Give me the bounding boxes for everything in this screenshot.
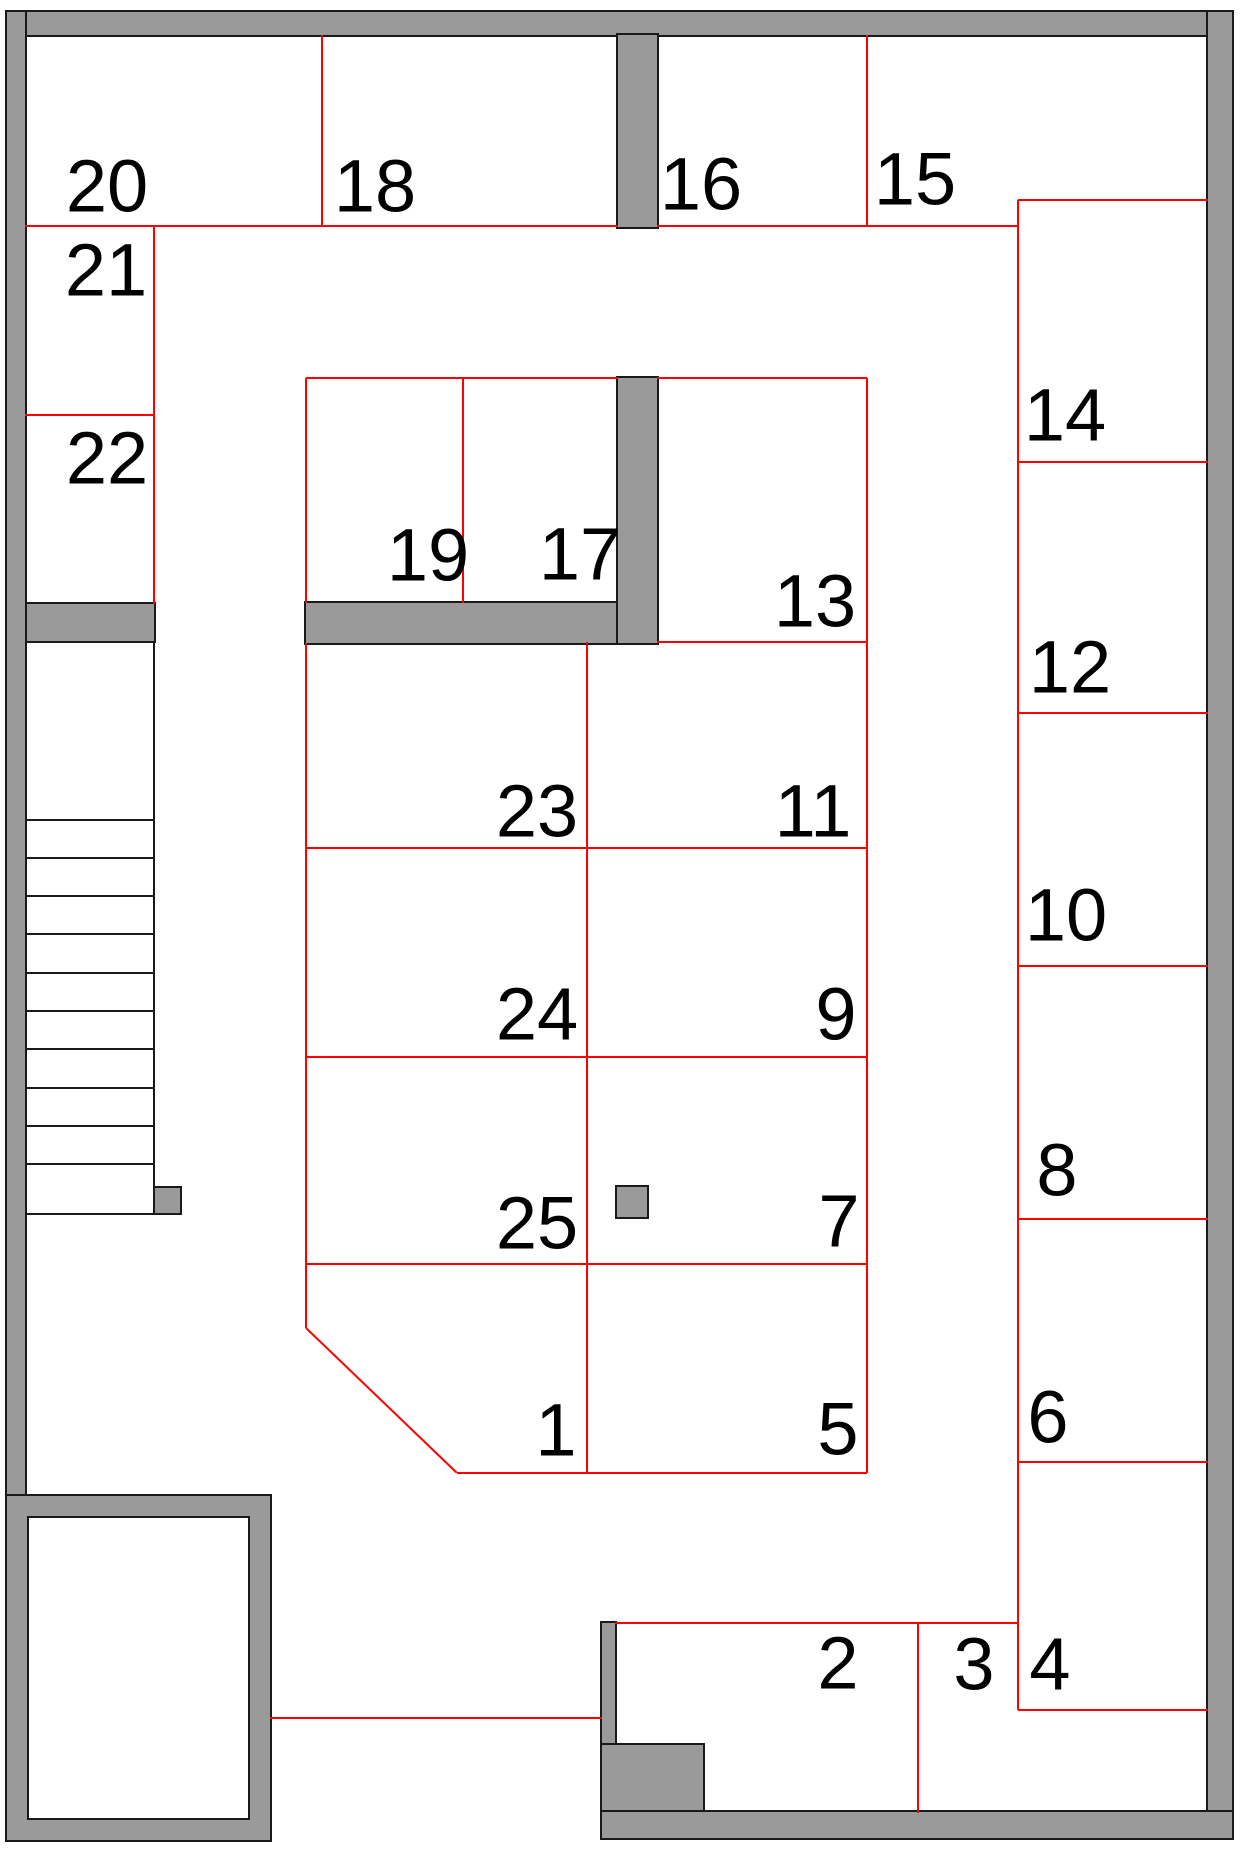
right-wall: [1206, 10, 1234, 1840]
partition-line: [586, 642, 588, 1473]
pier-between-18-16: [616, 33, 659, 229]
room-label-8: 8: [1036, 1134, 1077, 1208]
room-label-25: 25: [496, 1187, 578, 1261]
stair-step: [27, 1048, 153, 1050]
stair-base-block: [153, 1186, 182, 1215]
stair-step: [27, 895, 153, 897]
room-label-18: 18: [334, 150, 416, 224]
partition-line: [305, 643, 307, 1328]
room-label-23: 23: [496, 775, 578, 849]
room-label-20: 20: [66, 150, 148, 224]
room-label-9: 9: [815, 978, 856, 1052]
room-label-6: 6: [1027, 1381, 1068, 1455]
partition-line: [1018, 712, 1208, 714]
room-label-17: 17: [539, 518, 621, 592]
staircase: [25, 641, 155, 1215]
column-block: [615, 1185, 649, 1219]
partition-line: [1018, 965, 1208, 967]
room-label-13: 13: [774, 565, 856, 639]
wall-below-19-17: [304, 601, 659, 645]
partition-line: [657, 377, 867, 379]
room-label-1: 1: [535, 1394, 576, 1468]
room-label-21: 21: [65, 234, 147, 308]
partition-line: [1018, 1461, 1208, 1463]
room-label-11: 11: [775, 775, 852, 849]
room-label-10: 10: [1025, 879, 1107, 953]
partition-line: [866, 35, 868, 226]
partition-line: [1017, 200, 1019, 1710]
partition-line: [1018, 1218, 1208, 1220]
room-label-24: 24: [496, 978, 578, 1052]
partition-line: [1018, 461, 1208, 463]
partition-line: [153, 226, 155, 604]
room-label-16: 16: [660, 148, 742, 222]
wall-right-of-17: [616, 376, 659, 645]
floor-plan: 2018161521221917131412231110249825761523…: [0, 0, 1247, 1853]
room-label-15: 15: [874, 143, 956, 217]
room-label-2: 2: [817, 1627, 858, 1701]
wall-below-20-22: [25, 602, 156, 643]
partition-line: [270, 1717, 602, 1719]
room-label-4: 4: [1029, 1628, 1070, 1702]
partition-line: [1018, 1709, 1208, 1711]
partition-line: [305, 1327, 457, 1473]
room-label-22: 22: [66, 422, 148, 496]
room-label-14: 14: [1024, 379, 1106, 453]
partition-line: [457, 1472, 867, 1474]
room-label-7: 7: [818, 1185, 859, 1259]
stair-step: [27, 933, 153, 935]
partition-line: [917, 1623, 919, 1813]
stair-step: [27, 819, 153, 821]
room-label-5: 5: [817, 1393, 858, 1467]
partition-line: [305, 378, 307, 603]
stair-step: [27, 857, 153, 859]
partition-line: [866, 378, 868, 1473]
partition-line: [1018, 199, 1208, 201]
stair-step: [27, 972, 153, 974]
room-label-3: 3: [953, 1628, 994, 1702]
partition-line: [321, 35, 323, 226]
room-label-19: 19: [387, 519, 469, 593]
bottom-left-shaft-interior: [27, 1516, 250, 1820]
stair-step: [27, 1125, 153, 1127]
stair-step: [27, 1010, 153, 1012]
room-label-12: 12: [1029, 631, 1111, 705]
bottom-center-step: [600, 1743, 705, 1812]
stair-step: [27, 1087, 153, 1089]
stair-step: [27, 1163, 153, 1165]
bottom-wall: [600, 1810, 1234, 1840]
